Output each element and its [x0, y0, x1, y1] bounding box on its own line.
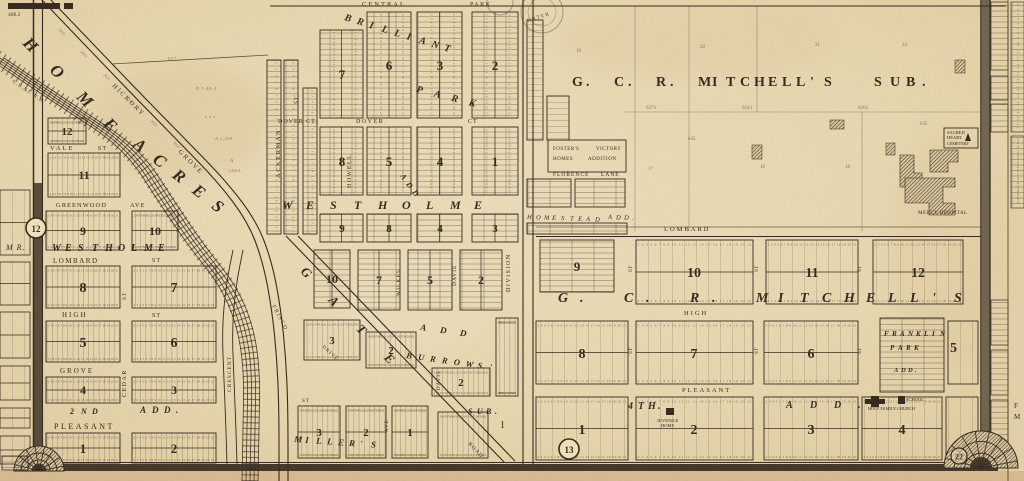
svg-text:2 3 4 5 6 7 8 9 10 11 12 13 14: 2 3 4 5 6 7 8 9 10 11 12 13 14 15 16 17 … [332, 129, 336, 193]
svg-text:.: . [922, 75, 926, 90]
svg-text:DOVER: DOVER [356, 119, 384, 125]
svg-text:3: 3 [171, 383, 177, 397]
svg-text:6: 6 [171, 336, 178, 351]
svg-text:L: L [796, 75, 805, 90]
svg-text:2 3 4 5 6 7 8 9 10 11 12 13 14: 2 3 4 5 6 7 8 9 10 11 12 13 14 15 16 17 … [638, 324, 752, 328]
svg-text:1: 1 [492, 154, 499, 169]
svg-text:M: M [449, 198, 461, 212]
svg-text:L: L [130, 243, 137, 254]
svg-text:ADDITION: ADDITION [588, 157, 616, 162]
svg-text:13: 13 [565, 445, 575, 455]
svg-text:2 3 4 5 6 7 8 9 10 11 12 13 14: 2 3 4 5 6 7 8 9 10 11 12 13 14 15 16 17 … [766, 379, 857, 383]
svg-text:12: 12 [62, 126, 74, 138]
svg-text:N: N [939, 330, 946, 338]
svg-text:HEART: HEART [947, 135, 962, 140]
svg-text:11: 11 [805, 266, 818, 281]
svg-text:22: 22 [955, 453, 963, 462]
svg-text:.: . [670, 75, 674, 90]
svg-text:T: T [92, 243, 99, 254]
svg-text:9: 9 [80, 224, 86, 238]
svg-text:5: 5 [427, 273, 433, 287]
svg-text:2 3 4 5 6 7 8 9 10 11 12 13 14: 2 3 4 5 6 7 8 9 10 11 12 13 14 15 16 17 … [134, 269, 215, 273]
svg-text:7: 7 [171, 281, 178, 296]
svg-text:R: R [656, 75, 667, 90]
svg-text:O: O [118, 243, 125, 254]
svg-text:9: 9 [339, 223, 345, 235]
svg-text:A: A [230, 159, 234, 164]
svg-text:T: T [726, 75, 736, 90]
svg-text:H: H [754, 75, 765, 90]
svg-text:': ' [932, 291, 936, 306]
svg-text:A: A [585, 216, 590, 223]
svg-text:D: D [151, 405, 159, 415]
svg-text:L: L [315, 435, 323, 445]
svg-text:A: A [897, 344, 903, 352]
svg-text:2 3 4 5 6 7 8 9 10 11 12 13 14: 2 3 4 5 6 7 8 9 10 11 12 13 14 15 16 17 … [440, 415, 487, 419]
svg-text:SCHOOL: SCHOOL [906, 397, 924, 402]
svg-text:VALE: VALE [50, 145, 75, 152]
svg-text:D: D [833, 400, 841, 411]
svg-text:2 3 4 5 6 7 8 9 10 11 12 13 14: 2 3 4 5 6 7 8 9 10 11 12 13 14 15 16 17 … [48, 269, 119, 273]
svg-text:c o s: c o s [205, 114, 216, 119]
svg-text:7: 7 [339, 67, 346, 82]
svg-text:2 3 4 5 6 7 8 9 10 11 12 13 14: 2 3 4 5 6 7 8 9 10 11 12 13 14 15 16 17 … [508, 14, 512, 116]
svg-text:L: L [326, 436, 334, 446]
svg-text:2 3 4 5 6 7 8 9 10 11 12 13 14: 2 3 4 5 6 7 8 9 10 11 12 13 14 15 16 17 … [48, 324, 119, 328]
svg-text:R: R [905, 344, 911, 352]
svg-text:A: A [893, 367, 899, 374]
svg-text:M: M [143, 243, 154, 254]
svg-text:5: 5 [80, 336, 87, 351]
svg-text:10: 10 [149, 224, 161, 238]
svg-text:E: E [337, 437, 345, 447]
svg-text:H: H [843, 291, 856, 306]
svg-text:S: S [874, 75, 882, 90]
svg-text:.: . [495, 407, 497, 416]
svg-text:2 3 4 5 6 7 8 9 10 11 12 13 14: 2 3 4 5 6 7 8 9 10 11 12 13 14 15 16 17 … [379, 14, 383, 116]
svg-text:2 3 4 5 6 7 8 9 10 11 12 13 14: 2 3 4 5 6 7 8 9 10 11 12 13 14 15 16 17 … [134, 458, 215, 462]
svg-text:R: R [891, 330, 897, 338]
svg-text:S: S [954, 291, 962, 306]
svg-text:A: A [419, 322, 427, 333]
svg-text:2 3 4 5 6 7 8 9 10 11 12 13 14: 2 3 4 5 6 7 8 9 10 11 12 13 14 15 16 17 … [875, 243, 962, 247]
svg-text:2 3 4 5 6 7 8 9 10 11 12 13 14: 2 3 4 5 6 7 8 9 10 11 12 13 14 15 16 17 … [394, 409, 427, 413]
svg-text:A: A [785, 400, 793, 411]
svg-text:ST: ST [858, 265, 863, 272]
svg-text:I: I [777, 291, 784, 306]
svg-text:2: 2 [478, 273, 484, 287]
svg-text:D: D [907, 367, 913, 374]
svg-text:S: S [824, 75, 832, 90]
svg-text:S: S [330, 198, 337, 212]
svg-text:645: 645 [920, 122, 928, 127]
svg-text:E: E [768, 75, 777, 90]
svg-text:2 3 4 5 6 7 8 9 10 11 12 13 14: 2 3 4 5 6 7 8 9 10 11 12 13 14 15 16 17 … [353, 129, 357, 193]
svg-text:HOME: HOME [661, 423, 675, 428]
svg-text:8: 8 [339, 154, 346, 169]
svg-text:A: A [607, 214, 612, 221]
svg-text:2 3 4 5 6 7 8 9 10 11 12 13 14: 2 3 4 5 6 7 8 9 10 11 12 13 14 15 16 17 … [300, 409, 339, 413]
svg-text:G: G [572, 75, 583, 90]
svg-text:A: A [139, 405, 146, 415]
svg-text:PLEASANT: PLEASANT [682, 387, 731, 394]
svg-text:A: A [899, 330, 905, 338]
svg-text:2 3 4 5 6 7 8 9 10 11 12 13 14: 2 3 4 5 6 7 8 9 10 11 12 13 14 15 16 17 … [498, 321, 517, 325]
svg-text:M: M [698, 75, 711, 90]
svg-text:C: C [740, 75, 750, 90]
svg-text:2 3 4 5 6 7 8 9 10 11 12 13 14: 2 3 4 5 6 7 8 9 10 11 12 13 14 15 16 17 … [401, 14, 405, 116]
svg-text:2 3 4 5 6 7 8 9 10 11 12 13 14: 2 3 4 5 6 7 8 9 10 11 12 13 14 15 16 17 … [50, 139, 85, 143]
svg-text:2 3 4 5 6 7 8 9 10 11 12 13 14: 2 3 4 5 6 7 8 9 10 11 12 13 14 15 16 17 … [368, 335, 415, 339]
svg-text:6243: 6243 [742, 106, 753, 111]
svg-text:2 3 4 5 6 7 8 9 10 11 12 13 14: 2 3 4 5 6 7 8 9 10 11 12 13 14 15 16 17 … [134, 398, 215, 402]
svg-text:2 3 4 5 6 7 8 9 10 11 12 13 14: 2 3 4 5 6 7 8 9 10 11 12 13 14 15 16 17 … [368, 363, 415, 367]
svg-text:CRESCENT: CRESCENT [227, 356, 233, 392]
svg-text:S: S [371, 439, 377, 449]
svg-text:D: D [900, 367, 906, 374]
svg-text:4: 4 [899, 423, 906, 438]
svg-text:N: N [907, 330, 914, 338]
svg-text:18: 18 [760, 165, 766, 170]
svg-text:2 3 4 5 6 7 8 9 10 11 12 13 14: 2 3 4 5 6 7 8 9 10 11 12 13 14 15 16 17 … [864, 455, 941, 459]
svg-text:D: D [594, 216, 600, 223]
svg-text:2: 2 [691, 423, 698, 438]
svg-text:6: 6 [386, 58, 393, 73]
svg-text:G: G [558, 291, 568, 306]
svg-text:1: 1 [579, 423, 586, 438]
svg-text:DAVIS: DAVIS [437, 370, 442, 390]
svg-text:D 1-40-4: D 1-40-4 [196, 86, 217, 91]
svg-text:GREENWOOD: GREENWOOD [56, 202, 107, 209]
svg-text:2 3 4 5 6 7 8 9 10 11 12 13 14: 2 3 4 5 6 7 8 9 10 11 12 13 14 15 16 17 … [538, 324, 627, 328]
svg-text:2 3 4 5 6 7 8 9 10 11 12 13 14: 2 3 4 5 6 7 8 9 10 11 12 13 14 15 16 17 … [768, 243, 857, 247]
svg-text:3: 3 [437, 58, 444, 73]
svg-text:.: . [628, 75, 632, 90]
svg-text:CENTRAL: CENTRAL [362, 1, 406, 8]
svg-text:D: D [615, 214, 621, 221]
svg-text:2 3 4 5 6 7 8 9 10 11 12 13 14: 2 3 4 5 6 7 8 9 10 11 12 13 14 15 16 17 … [508, 129, 512, 193]
svg-text:H: H [104, 243, 114, 254]
svg-text:MERCY HOSPITAL: MERCY HOSPITAL [918, 211, 968, 216]
svg-text:8: 8 [386, 223, 392, 235]
svg-text:ST: ST [755, 265, 760, 272]
svg-text:2 3 4 5 6 7 8 9 10 11 12 13 14: 2 3 4 5 6 7 8 9 10 11 12 13 14 15 16 17 … [638, 455, 752, 459]
svg-text:2 3 4 5 6 7 8 9 10 11 12 13 14: 2 3 4 5 6 7 8 9 10 11 12 13 14 15 16 17 … [434, 391, 489, 395]
svg-text:O: O [402, 198, 411, 212]
svg-text:T: T [800, 291, 810, 306]
svg-text:6273: 6273 [646, 106, 657, 111]
svg-text:WILKES: WILKES [396, 269, 402, 296]
svg-text:HOWELL: HOWELL [347, 154, 353, 188]
svg-text:CT: CT [468, 119, 478, 125]
svg-text:.: . [658, 401, 661, 412]
svg-text:.: . [646, 291, 650, 306]
svg-text:AVE: AVE [385, 419, 390, 432]
svg-text:ST: ST [302, 399, 310, 404]
svg-text:2 3 4 5 6 7 8 9 10 11 12 13 14: 2 3 4 5 6 7 8 9 10 11 12 13 14 15 16 17 … [1016, 4, 1020, 128]
svg-text:12: 12 [32, 224, 42, 234]
svg-text:CEMETERY: CEMETERY [947, 141, 969, 146]
svg-text:D: D [163, 405, 171, 415]
svg-text:2 3 4 5 6 7 8 9 10 11 12 13 14: 2 3 4 5 6 7 8 9 10 11 12 13 14 15 16 17 … [638, 243, 752, 247]
svg-text:2 3 4 5 6 7 8 9 10 11 12 13 14: 2 3 4 5 6 7 8 9 10 11 12 13 14 15 16 17 … [332, 32, 336, 116]
svg-text:2 3 4 5 6 7 8 9 10 11 12 13 14: 2 3 4 5 6 7 8 9 10 11 12 13 14 15 16 17 … [311, 90, 315, 232]
svg-text:7: 7 [376, 273, 382, 287]
svg-text:AVE: AVE [130, 202, 146, 209]
svg-text:R: R [348, 438, 356, 448]
svg-text:21: 21 [815, 43, 821, 48]
svg-text:HIGH: HIGH [684, 310, 708, 317]
svg-text:22: 22 [902, 43, 908, 48]
svg-text:T: T [354, 198, 362, 212]
svg-text:2 3 4 5 6 7 8 9 10 11 12 13 14: 2 3 4 5 6 7 8 9 10 11 12 13 14 15 16 17 … [48, 214, 119, 218]
svg-text:2 3 4 5 6 7 8 9 10 11 12 13 14: 2 3 4 5 6 7 8 9 10 11 12 13 14 15 16 17 … [538, 455, 627, 459]
svg-text:4: 4 [437, 154, 444, 169]
svg-text:ST: ST [152, 313, 161, 319]
svg-text:20: 20 [700, 45, 706, 50]
svg-text:M: M [755, 291, 769, 306]
svg-text:4: 4 [437, 223, 443, 235]
svg-text:2: 2 [363, 427, 369, 439]
svg-text:2 3 4 5 6 7 8 9 10 11 12 13 14: 2 3 4 5 6 7 8 9 10 11 12 13 14 15 16 17 … [134, 324, 215, 328]
svg-text:LANE: LANE [601, 172, 620, 178]
svg-text:.: . [858, 400, 861, 411]
svg-text:2 3 4 5 6 7 8 9 10 11 12 13 14: 2 3 4 5 6 7 8 9 10 11 12 13 14 15 16 17 … [498, 391, 517, 395]
svg-text:2 3 4 5 6 7 8 9 10 11 12 13 14: 2 3 4 5 6 7 8 9 10 11 12 13 14 15 16 17 … [638, 379, 752, 383]
svg-text:ST: ST [755, 347, 760, 354]
svg-text:2 3 4 5 6 7 8 9 10 11 12 13 14: 2 3 4 5 6 7 8 9 10 11 12 13 14 15 16 17 … [48, 398, 119, 402]
svg-text:2 3 4 5 6 7 8 9 10 11 12 13 14: 2 3 4 5 6 7 8 9 10 11 12 13 14 15 16 17 … [1016, 138, 1020, 204]
svg-text:10: 10 [687, 266, 701, 281]
svg-text:D: D [809, 400, 817, 411]
svg-text:L: L [887, 291, 897, 306]
svg-text:HOLY FAMILY CHURCH: HOLY FAMILY CHURCH [868, 406, 915, 411]
svg-text:2 3 4 5 6 7 8 9 10 11 12 13 14: 2 3 4 5 6 7 8 9 10 11 12 13 14 15 16 17 … [134, 436, 215, 440]
svg-text:PLEASANT: PLEASANT [54, 422, 115, 431]
svg-text:': ' [810, 75, 814, 90]
svg-text:2 3 4 5 6 7 8 9 10 11 12 13 14: 2 3 4 5 6 7 8 9 10 11 12 13 14 15 16 17 … [134, 245, 177, 249]
svg-text:ST: ST [152, 258, 161, 264]
svg-text:DAVIE: DAVIE [452, 265, 458, 286]
svg-text:L: L [782, 75, 791, 90]
svg-text:E: E [473, 198, 482, 212]
svg-text:LOMBARD: LOMBARD [53, 257, 99, 265]
svg-text:645: 645 [688, 137, 696, 142]
svg-text:6: 6 [808, 347, 815, 362]
svg-text:HIGH: HIGH [62, 311, 88, 319]
svg-text:GROVE: GROVE [60, 367, 94, 375]
svg-text:2: 2 [171, 441, 178, 456]
svg-text:2 3 4 5 6 7 8 9 10 11 12 13 14: 2 3 4 5 6 7 8 9 10 11 12 13 14 15 16 17 … [485, 14, 489, 116]
svg-text:2 3 4 5 6 7 8 9 10 11 12 13 14: 2 3 4 5 6 7 8 9 10 11 12 13 14 15 16 17 … [48, 303, 119, 307]
svg-text:D: D [623, 215, 629, 222]
svg-text:4: 4 [627, 401, 633, 412]
svg-text:ST: ST [629, 347, 634, 354]
svg-text:E: E [64, 243, 72, 254]
svg-text:P: P [890, 344, 895, 352]
svg-text:HOMES: HOMES [553, 157, 573, 162]
svg-text:F: F [884, 330, 889, 338]
svg-text:2 3 4 5 6 7 8 9 10 11 12 13 14: 2 3 4 5 6 7 8 9 10 11 12 13 14 15 16 17 … [50, 192, 119, 196]
svg-text:7: 7 [691, 347, 698, 362]
svg-text:2 3 4 5 6 7 8 9 10 11 12 13 14: 2 3 4 5 6 7 8 9 10 11 12 13 14 15 16 17 … [452, 14, 456, 116]
svg-text:2 3 4 5 6 7 8 9 10 11 12 13 14: 2 3 4 5 6 7 8 9 10 11 12 13 14 15 16 17 … [766, 324, 857, 328]
svg-text:2 3 4 5 6 7 8 9 10 11 12 13 14: 2 3 4 5 6 7 8 9 10 11 12 13 14 15 16 17 … [348, 409, 385, 413]
svg-text:E: E [865, 291, 875, 306]
svg-text:W: W [52, 243, 62, 254]
svg-text:2: 2 [492, 58, 499, 73]
svg-text:2 3 4 5 6 7 8 9 10 11 12 13 14: 2 3 4 5 6 7 8 9 10 11 12 13 14 15 16 17 … [429, 14, 433, 116]
svg-text:2 3 4 5 6 7 8 9 10 11 12 13 14: 2 3 4 5 6 7 8 9 10 11 12 13 14 15 16 17 … [538, 400, 627, 404]
svg-text:.: . [712, 291, 716, 306]
svg-text:ST: ST [629, 265, 634, 272]
svg-text:2 3 4 5 6 7 8 9 10 11 12 13 14: 2 3 4 5 6 7 8 9 10 11 12 13 14 15 16 17 … [306, 323, 359, 327]
svg-text:E: E [157, 243, 165, 254]
svg-text:B: B [906, 75, 915, 90]
svg-text:1: 1 [80, 441, 87, 456]
svg-text:FLORENCE: FLORENCE [553, 172, 589, 178]
svg-text:2 3 4 5 6 7 8 9 10 11 12 13 14: 2 3 4 5 6 7 8 9 10 11 12 13 14 15 16 17 … [348, 453, 385, 457]
svg-text:2 3 4 5 6 7 8 9 10 11 12 13 14: 2 3 4 5 6 7 8 9 10 11 12 13 14 15 16 17 … [48, 357, 119, 361]
svg-text:2 3 4 5 6 7 8 9 10 11 12 13 14: 2 3 4 5 6 7 8 9 10 11 12 13 14 15 16 17 … [485, 129, 489, 193]
svg-text:C: C [822, 291, 832, 306]
svg-text:M: M [1014, 413, 1021, 421]
svg-text:3: 3 [808, 423, 815, 438]
svg-text:2 3 4 5 6 7 8 9 10 11 12 13 14: 2 3 4 5 6 7 8 9 10 11 12 13 14 15 16 17 … [452, 129, 456, 193]
svg-text:408.2: 408.2 [8, 12, 21, 18]
svg-text:2 3 4 5 6 7 8 9 10 11 12 13 14: 2 3 4 5 6 7 8 9 10 11 12 13 14 15 16 17 … [134, 357, 215, 361]
svg-text:E: E [577, 216, 582, 223]
svg-text:U: U [890, 75, 900, 90]
svg-text:I: I [931, 330, 935, 338]
svg-text:2: 2 [458, 377, 464, 389]
svg-text:17: 17 [648, 167, 654, 172]
svg-text:L: L [425, 198, 433, 212]
svg-text:M: M [293, 434, 304, 445]
svg-text:T: T [570, 216, 574, 223]
svg-text:S: S [78, 243, 84, 254]
svg-text:18: 18 [845, 165, 851, 170]
svg-text:.: . [176, 405, 178, 415]
svg-text:.: . [580, 291, 584, 306]
svg-text:2 3 4 5 6 7 8 9 10 11 12 13 14: 2 3 4 5 6 7 8 9 10 11 12 13 14 15 16 17 … [353, 32, 357, 116]
svg-text:9: 9 [574, 259, 581, 274]
svg-text:8: 8 [579, 347, 586, 362]
svg-text:2 3 4 5 6 7 8 9 10 11 12 13 14: 2 3 4 5 6 7 8 9 10 11 12 13 14 15 16 17 … [50, 156, 119, 160]
svg-text:2 3 4 5 6 7 8 9 10 11 12 13 14: 2 3 4 5 6 7 8 9 10 11 12 13 14 15 16 17 … [401, 129, 405, 193]
svg-text:1: 1 [407, 427, 413, 439]
svg-text:5: 5 [386, 154, 393, 169]
svg-text:VICTORY: VICTORY [596, 147, 621, 152]
svg-text:2 3 4 5 6 7 8 9 10 11 12 13 14: 2 3 4 5 6 7 8 9 10 11 12 13 14 15 16 17 … [300, 453, 339, 457]
svg-text:19: 19 [576, 49, 582, 54]
svg-text:FOSTER'S: FOSTER'S [553, 147, 579, 152]
svg-text:M R.: M R. [5, 243, 26, 252]
svg-text:L: L [909, 291, 919, 306]
svg-text:.: . [586, 75, 590, 90]
svg-text:2 3 4 5 6 7 8 9 10 11 12 13 14: 2 3 4 5 6 7 8 9 10 11 12 13 14 15 16 17 … [134, 303, 215, 307]
svg-text:11: 11 [78, 168, 89, 182]
svg-text:E: E [551, 215, 556, 222]
svg-text:O: O [536, 214, 541, 221]
svg-text:12: 12 [911, 266, 925, 281]
svg-text:2 3 4 5 6 7 8 9 10 11 12 13 14: 2 3 4 5 6 7 8 9 10 11 12 13 14 15 16 17 … [48, 436, 119, 440]
svg-text:2 3 4 5 6 7 8 9 10 11 12 13 14: 2 3 4 5 6 7 8 9 10 11 12 13 14 15 16 17 … [379, 129, 383, 193]
svg-text:3: 3 [329, 335, 335, 347]
svg-text:R: R [689, 291, 699, 306]
svg-text:6263: 6263 [858, 106, 869, 111]
svg-text:8: 8 [80, 281, 87, 296]
svg-text:M: M [543, 215, 550, 222]
svg-text:T: T [638, 401, 645, 412]
svg-text:2: 2 [69, 407, 74, 416]
svg-text:2 3 4 5 6 7 8 9 10 11 12 13 14: 2 3 4 5 6 7 8 9 10 11 12 13 14 15 16 17 … [538, 379, 627, 383]
svg-text:DIVISION: DIVISION [506, 253, 512, 292]
svg-text:C: C [624, 291, 634, 306]
svg-text:CEDAR: CEDAR [122, 369, 128, 397]
svg-text:ST: ST [858, 347, 863, 354]
svg-text:4: 4 [80, 383, 86, 397]
svg-text:D: D [91, 407, 98, 416]
svg-text:H: H [647, 401, 657, 412]
svg-text:F: F [1014, 402, 1018, 410]
svg-text:ST: ST [98, 146, 107, 152]
svg-text:I: I [712, 75, 717, 90]
svg-text:2: 2 [388, 345, 394, 357]
svg-text:C: C [614, 75, 624, 90]
svg-text:2 3 4 5 6 7 8 9 10 11 12 13 14: 2 3 4 5 6 7 8 9 10 11 12 13 14 15 16 17 … [394, 453, 427, 457]
svg-text:ST: ST [122, 292, 128, 300]
svg-text:1: 1 [500, 420, 505, 431]
svg-text:8 T 7: 8 T 7 [168, 56, 176, 61]
svg-text:2 3 4 5 6 7 8 9 10 11 12 13 14: 2 3 4 5 6 7 8 9 10 11 12 13 14 15 16 17 … [766, 455, 857, 459]
svg-text:H: H [377, 198, 388, 212]
svg-text:2 3 4 5 6 7 8 9 10 11 12 13 14: 2 3 4 5 6 7 8 9 10 11 12 13 14 15 16 17 … [429, 129, 433, 193]
svg-text:L: L [923, 330, 928, 338]
svg-text:3: 3 [492, 223, 498, 235]
svg-text:H: H [526, 214, 532, 221]
